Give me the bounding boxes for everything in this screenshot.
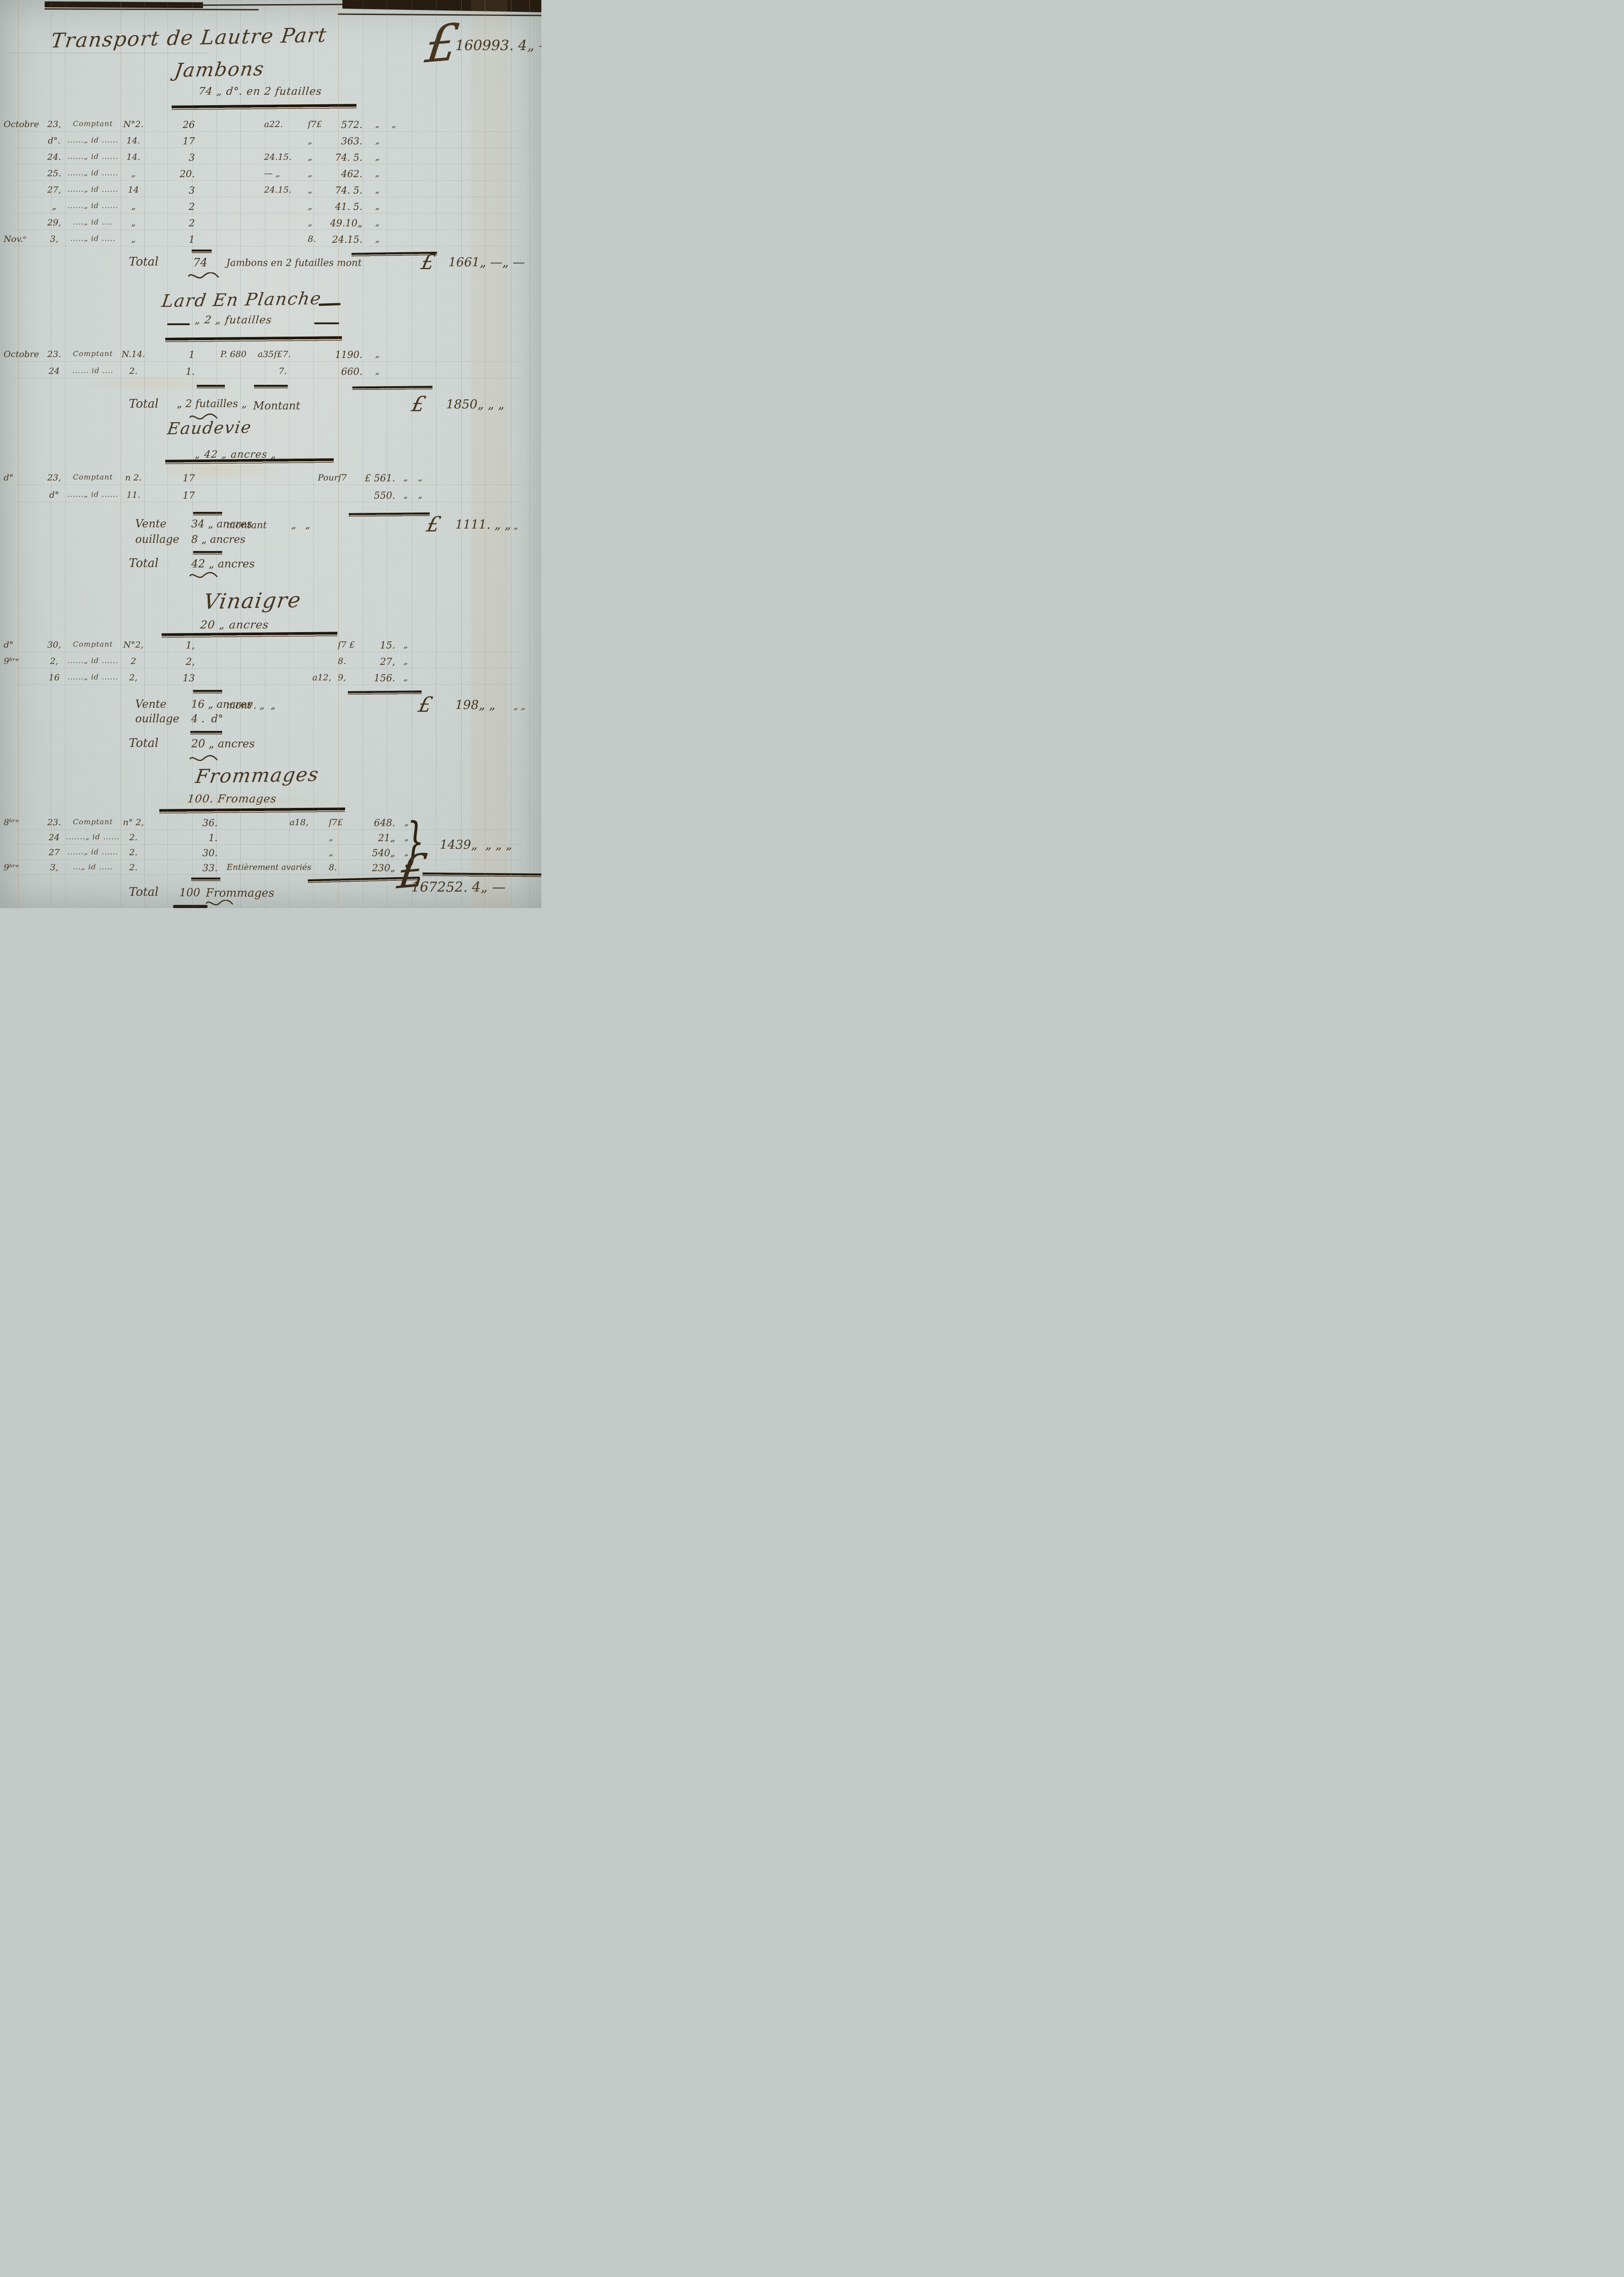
section-total-line: Total „ 2 futailles „ Montant £ 1850„ „ … [0, 397, 541, 416]
ink-dash [167, 323, 190, 325]
cell-desc: Comptant [65, 349, 121, 358]
section-subtitle-jambons: 74 „ d°. en 2 futailles [198, 86, 323, 97]
cell-d1: „ [375, 349, 380, 359]
section-total-line: Total 20 „ ancres [0, 736, 541, 756]
cell-desc: ......„ id ...... [65, 136, 121, 144]
table-row: „......„ id ......„2„41. 5.„ [0, 199, 541, 216]
cell-day: 16 [44, 673, 65, 683]
cell-d1: „ [375, 136, 380, 146]
subtotal-rule [191, 878, 220, 881]
subtotal-rule [190, 731, 222, 735]
cell-sous: „ [329, 832, 356, 842]
subtotal-rule [197, 385, 225, 388]
ouillage-label: ouillage [135, 712, 179, 725]
cell-price: a35ſ£7. [258, 349, 287, 359]
page-title: Transport de Lautre Part [50, 24, 328, 53]
cell-num: n 2. [121, 473, 146, 483]
cell-price: a18, [290, 817, 313, 827]
cell-amt: 21„ [359, 832, 395, 843]
cell-day: 24 [44, 832, 65, 842]
total-quantity: 100 [179, 886, 200, 899]
cell-d1: „ [375, 185, 380, 195]
cell-amt: 1190. [324, 349, 362, 360]
carried-forward-amount: 160993. 4„ — [455, 37, 541, 54]
cell-qty: 33. [191, 863, 218, 873]
total-text: Jambons en 2 futailles mont [226, 257, 361, 268]
cell-sous: 8. [338, 656, 357, 666]
cell-desc: ......„ id ...... [65, 673, 121, 681]
vente-label: Vente [135, 698, 167, 710]
subtotal-rule [193, 512, 222, 516]
cell-amt: £ 561. [356, 473, 395, 484]
flourish-squiggle [189, 755, 218, 763]
cell-num: 14. [121, 152, 146, 162]
cell-date: Octobre [4, 119, 39, 129]
table-row: d°30,ComptantN°2,1,ſ7 £15.„ [0, 638, 541, 654]
cell-amt: 230„ [359, 863, 395, 873]
cell-date: 8ᵇʳᵉ [4, 817, 19, 827]
section-rule [165, 336, 342, 342]
subtotal-rule [348, 690, 422, 694]
cell-num: 11. [121, 490, 146, 500]
cell-d1: „ [403, 640, 408, 650]
cell-desc: Comptant [65, 473, 121, 481]
cell-d1: „ [404, 863, 409, 873]
cell-num: „ [121, 218, 146, 228]
cell-qty: 3 [172, 152, 195, 163]
scan-edge-artifact [45, 1, 203, 8]
cell-qty: 1 [172, 349, 195, 360]
cell-qty: 1 [172, 234, 195, 245]
manuscript-ledger-page: Transport de Lautre Part £ 160993. 4„ — … [0, 0, 541, 908]
table-row: d°.......„ id ......14.17„363.„ [0, 134, 541, 150]
subtotal-rule [352, 386, 433, 390]
cell-desc: Comptant [65, 119, 121, 128]
table-row: 9ᵇʳᵉ3,...„ id .....2.33.Entièrement avar… [0, 861, 541, 877]
total-quantity: 74 [193, 256, 208, 269]
cell-day: 25. [44, 168, 65, 179]
cell-num: 2. [121, 847, 146, 858]
cell-amt: 74. 5. [324, 185, 362, 196]
cell-d2: „ [418, 473, 423, 483]
cell-qty: 17 [172, 136, 195, 147]
cell-sous: 9, [338, 673, 357, 683]
cell-desc: ......„ id ...... [65, 185, 121, 194]
ouillage-quantity: 4 . d° [191, 713, 223, 725]
cell-day: „ [44, 201, 65, 211]
table-row: 16......„ id ......2,13a12,9,156.„ [0, 671, 541, 687]
cell-qty: 2 [172, 218, 195, 229]
cell-sous: ſ7£ [329, 817, 356, 827]
cell-amt: 74. 5. [324, 152, 362, 163]
cell-num: „ [121, 201, 146, 211]
cell-amt: 15. [359, 640, 395, 651]
vente-value: 1111. „ „ [455, 518, 511, 532]
cell-desc: ......„ id ...... [65, 201, 121, 210]
cell-qty: 17 [172, 473, 195, 484]
cell-desc: ......„ id ...... [65, 168, 121, 177]
cell-d1: „ [404, 817, 409, 827]
subtotal-rule [193, 690, 222, 694]
cell-desc: ......„ id ...... [65, 152, 121, 161]
cell-day: 24. [44, 152, 65, 162]
cell-qty: 1, [172, 640, 195, 651]
cell-sous: 8. [329, 863, 356, 873]
ouillage-label: ouillage [135, 533, 179, 546]
ink-dash [314, 322, 339, 324]
section-title-vinaigre: Vinaigre [202, 587, 303, 614]
cell-d1: „ [375, 152, 380, 162]
cell-date: d° [4, 473, 14, 483]
cell-day: 3, [44, 863, 65, 873]
vente-text: montᵗ. „ „ [226, 700, 275, 711]
total-label: Total [129, 556, 158, 570]
section-subtitle-lard: „ 2 „ futailles [194, 314, 273, 326]
cell-num: N°2, [121, 640, 146, 650]
table-row: 27......„ id ......2.30.„540„„ [0, 846, 541, 862]
vente-value: 198„ „ [455, 698, 495, 712]
scan-edge-artifact [173, 905, 208, 908]
cell-num: 14. [121, 136, 146, 146]
cell-desc: ......„ id ...... [65, 656, 121, 665]
total-label: Total [129, 736, 158, 750]
cell-date: 9ᵇʳᵉ [4, 863, 19, 873]
table-row: Octobre23.ComptantN.14.1P. 680a35ſ£7.119… [0, 347, 541, 364]
cell-d1: „ [375, 168, 380, 179]
cell-d1: „ [403, 473, 408, 483]
cell-qty: 17 [172, 490, 195, 501]
total-label: Total [129, 255, 158, 269]
table-row: Nov.ᵉ3,.....„ id .....„18.24.15.„ [0, 232, 541, 249]
cell-day: 27 [44, 847, 65, 858]
cell-num: N°2. [121, 119, 146, 129]
grand-total-value: 167252. 4„ — [411, 879, 506, 895]
cell-sous: Pourſ7 [318, 473, 360, 483]
cell-qty: 26 [172, 119, 195, 130]
cell-qty: 1. [172, 366, 195, 377]
section-subtitle-frommages: 100. Fromages [187, 792, 278, 805]
cell-num: N.14. [121, 349, 146, 359]
cell-price: a22. [264, 119, 293, 129]
cell-day: 23. [44, 817, 65, 827]
cell-d2: „ [418, 490, 423, 500]
cell-day: 23, [44, 473, 65, 483]
table-row: 29,....„ id ....„2„49.10„„ [0, 216, 541, 232]
cell-d1: „ [375, 218, 380, 228]
cell-amt: 462. [324, 168, 362, 179]
subtotal-rule [193, 551, 222, 555]
vente-text: montant „ „ [226, 520, 310, 531]
table-row: 9ᵇʳᵉ2,......„ id ......22,8.27,„ [0, 654, 541, 671]
cell-amt: 550. [356, 490, 395, 501]
scan-edge-artifact [342, 0, 541, 12]
cell-amt: 540„ [359, 847, 395, 858]
ditto-marks: „ [514, 521, 518, 531]
subtotal-rule [254, 385, 288, 388]
section-title-lard: Lard En Planche [160, 288, 323, 311]
section-total-line: Total 42 „ ancres [0, 556, 541, 576]
cell-desc: ...... id .... [65, 366, 121, 375]
section-title-frommages: Frommages [194, 763, 321, 788]
cell-num: n° 2, [121, 817, 146, 827]
cell-d1: „ [375, 234, 380, 244]
section-rule [172, 104, 356, 111]
table-row: 24...... id ....2.1.7.660.„ [0, 364, 541, 381]
section-rule [162, 632, 337, 638]
cell-d1: „ [403, 656, 408, 666]
cell-date: 9ᵇʳᵉ [4, 656, 19, 666]
cell-desc: ......„ id ...... [65, 490, 121, 499]
cell-day: 23. [44, 349, 65, 359]
scan-edge-line [45, 8, 259, 10]
total-text: Frommages [206, 886, 274, 899]
cell-day: 24 [44, 366, 65, 376]
section-title-jambons: Jambons [173, 57, 266, 81]
table-row: d°......„ id ......11.17550.„„ [0, 488, 541, 505]
cell-day: 27, [44, 185, 65, 195]
cell-day: 30, [44, 640, 65, 650]
cell-day: d° [44, 490, 65, 500]
cell-price: 24.15. [264, 185, 293, 195]
cell-num: 2. [121, 863, 146, 873]
total-quantity: „ 2 futailles „ [177, 398, 247, 410]
cell-num: „ [121, 234, 146, 244]
cell-desc: Comptant [65, 640, 121, 648]
total-text: Montant [253, 399, 300, 412]
table-row: 27,......„ id ......14324.15.„74. 5.„ [0, 183, 541, 199]
cell-d1: „ [404, 847, 409, 858]
ink-dash [319, 303, 341, 306]
cell-day: d°. [44, 136, 65, 146]
guide-line [9, 53, 209, 53]
cell-qty: 13 [172, 673, 195, 684]
cell-desc: Comptant [65, 817, 121, 826]
section-subtitle-vinaigre: 20 „ ancres [200, 618, 270, 631]
cell-d2: „ [392, 119, 396, 129]
subtotal-rule [349, 512, 430, 517]
total-quantity: 42 „ ancres [191, 557, 255, 570]
cell-d1: „ [403, 673, 408, 683]
cell-sous: ſ7 £ [338, 640, 357, 650]
cell-qty: 2, [172, 656, 195, 667]
cell-desc: ....„ id .... [65, 218, 121, 226]
total-value: 1850„ „ „ [446, 398, 504, 412]
section-rule [165, 458, 334, 465]
cell-date: Nov.ᵉ [4, 234, 26, 244]
cell-price: 24.15. [264, 152, 293, 162]
table-row: 25.......„ id ......„20.— „„462.„ [0, 167, 541, 183]
cell-num: 2, [121, 673, 146, 683]
cell-amt: 156. [359, 673, 395, 684]
table-row: Octobre23,ComptantN°2.26a22.ſ7£572.„„ [0, 117, 541, 134]
table-row: d°23,Comptantn 2.17Pourſ7£ 561.„„ [0, 471, 541, 487]
cell-d1: „ [403, 490, 408, 500]
subtotal-rule [192, 250, 212, 253]
cell-qty: 1. [191, 832, 218, 843]
total-label: Total [129, 885, 158, 899]
cell-d1: „ [375, 119, 380, 129]
cell-amt: 572. [324, 119, 362, 130]
cell-day: 23, [44, 119, 65, 129]
total-quantity: 20 „ ancres [191, 737, 255, 750]
cell-qty: 3 [172, 185, 195, 196]
cell-d1: „ [375, 366, 380, 376]
cell-date: d° [4, 640, 14, 650]
cell-num: „ [121, 168, 146, 179]
section-rule [159, 807, 345, 814]
cell-sous: 7. [279, 366, 304, 376]
cell-d1: „ [404, 832, 409, 842]
cell-qty: 20. [172, 168, 195, 179]
cell-amt: 648. [359, 817, 395, 828]
cell-date: Octobre [4, 349, 39, 359]
cell-num: 14 [121, 185, 146, 195]
cell-num: 2. [121, 366, 146, 376]
cell-amt: 24.15. [324, 234, 362, 245]
cell-amt: 27, [359, 656, 395, 667]
scan-edge-line [200, 4, 351, 6]
ditto-marks: „ „ [514, 701, 525, 711]
cell-price: — „ [264, 168, 293, 179]
cell-desc: .......„ id ...... [65, 832, 121, 841]
cell-amt: 49.10„ [324, 218, 362, 229]
table-row: 24.......„ id ......14.324.15.„74. 5.„ [0, 150, 541, 167]
cell-amt: 363. [324, 136, 362, 147]
cell-sous: „ [329, 847, 356, 858]
currency-pound-glyph: £ [409, 392, 428, 416]
cell-amt: 660. [324, 366, 362, 377]
section-total-line: Total 74 Jambons en 2 futailles mont £ 1… [0, 255, 541, 274]
cell-day: 2, [44, 656, 65, 666]
ouillage-line: ouillage 4 . d° [0, 712, 541, 731]
cell-qty: 2 [172, 201, 195, 212]
cell-num: 2 [121, 656, 146, 666]
cell-amt: 41. 5. [324, 201, 362, 212]
ouillage-quantity: 8 „ ancres [191, 534, 245, 546]
cell-note: Entièrement avariés [227, 863, 325, 872]
vente-label: Vente [135, 517, 167, 530]
cell-price: a12, [312, 673, 333, 683]
cell-day: 29, [44, 218, 65, 228]
cell-desc: ...„ id ..... [65, 863, 121, 871]
cell-day: 3, [44, 234, 65, 244]
table-row: 8ᵇʳᵉ23.Comptantn° 2,36.a18,ſ7£648.„ [0, 816, 541, 832]
cell-qty: 36. [191, 817, 218, 828]
section-title-eaudevie: Eaudevie [166, 418, 253, 438]
table-row: 24.......„ id ......2.1.„21„„ [0, 831, 541, 847]
cell-d1: „ [375, 201, 380, 211]
total-label: Total [129, 397, 158, 411]
cell-qty: 30. [191, 847, 218, 858]
cell-desc: ......„ id ...... [65, 847, 121, 856]
ouillage-line: ouillage 8 „ ancres [0, 533, 541, 552]
cell-num: 2. [121, 832, 146, 842]
total-value: 1661„ —„ — [448, 255, 525, 270]
cell-desc: .....„ id ..... [65, 234, 121, 243]
